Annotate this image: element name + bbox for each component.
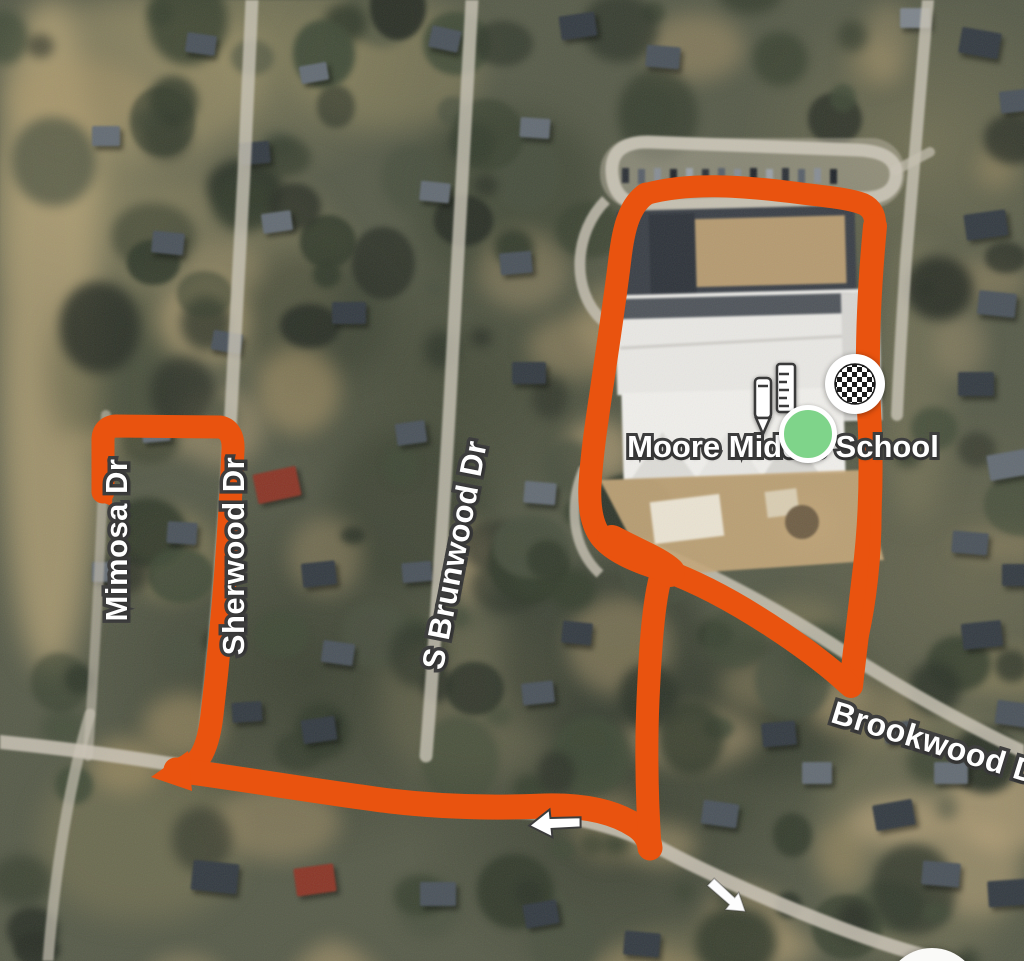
street-label-mimosa: Mimosa Dr: [99, 459, 135, 622]
satellite-imagery: [0, 0, 1024, 961]
start-dot-marker: [779, 405, 837, 463]
map-viewport[interactable]: Mimosa Dr Sherwood Dr S Brunwood Dr Broo…: [0, 0, 1024, 961]
street-label-sherwood: Sherwood Dr: [216, 457, 252, 655]
finish-flag-icon: [820, 349, 890, 419]
